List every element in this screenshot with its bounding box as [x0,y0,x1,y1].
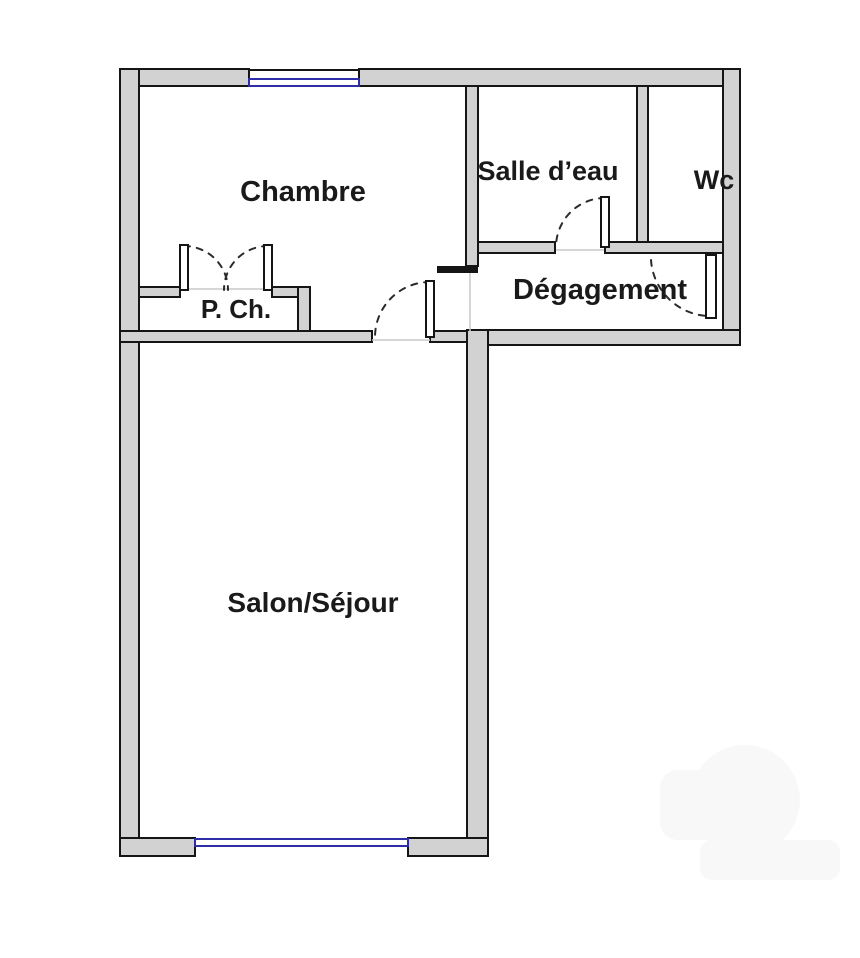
door-leaf-closet-right [264,245,272,290]
wall-bottom-right-segment [408,838,488,856]
wall-degagement-south-outer [467,330,740,345]
room-label-placard: P. Ch. [201,294,271,324]
door-leaf-salon [426,281,434,337]
door-arc-closet-left [184,246,228,290]
wall-left-outer [120,69,139,856]
wall-salle-eau-wc [637,86,648,245]
room-label-chambre: Chambre [240,176,366,208]
wall-wc-south [605,242,723,253]
wall-salon-north-right [430,331,467,342]
room-label-salle-eau: Salle d’eau [477,156,618,186]
wall-closet-top-left [139,287,180,297]
door-leaf-salle-eau [601,197,609,247]
floor-plan-svg: Chambre Salle d’eau Wc Dégagement P. Ch.… [0,0,860,958]
watermark [660,745,840,880]
wall-chambre-salle-eau [466,86,478,266]
door-leaf-closet-left [180,245,188,290]
wall-bottom-left-segment [120,838,195,856]
wall-salon-north-left [120,331,372,342]
room-label-degagement: Dégagement [513,274,687,306]
wall-top-right-segment [359,69,740,86]
floor-plan-page: Chambre Salle d’eau Wc Dégagement P. Ch.… [0,0,860,958]
door-arc-salon [375,282,430,337]
room-label-salon: Salon/Séjour [227,587,398,618]
room-label-wc: Wc [694,165,735,195]
wall-salle-eau-south [478,242,555,253]
wall-stub-degagement [437,266,478,273]
window-bottom [195,839,408,846]
wall-salon-right-outer [467,330,488,856]
door-leaf-entrance [706,255,716,318]
window-top [249,79,359,86]
wall-right-outer [723,69,740,345]
door-arc-salle-eau [556,198,605,247]
door-arc-closet-right [224,246,268,290]
